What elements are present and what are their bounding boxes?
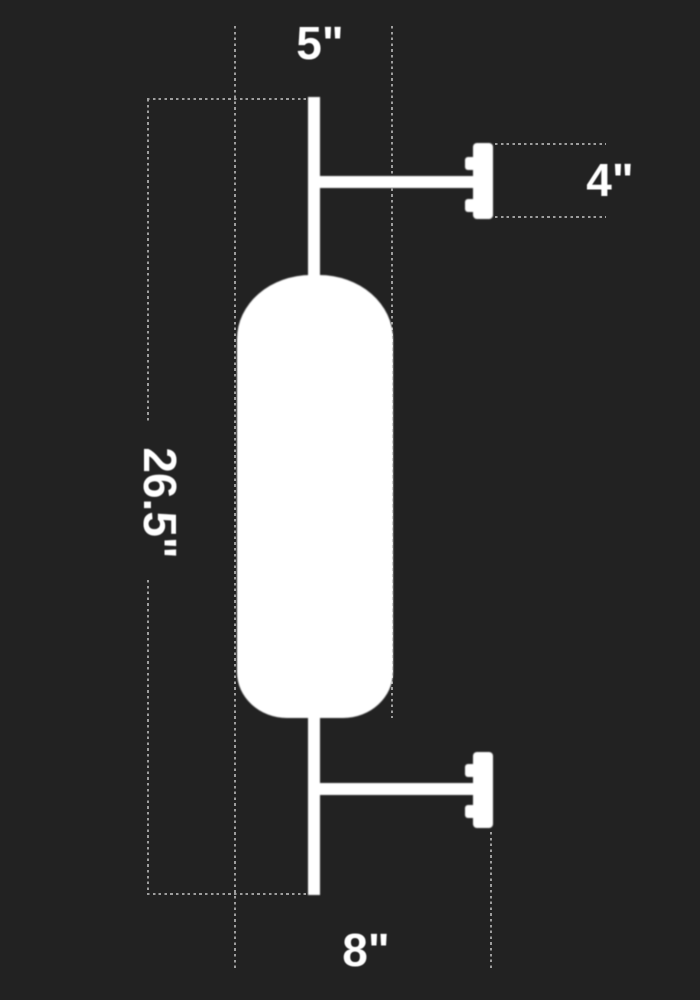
wall-light-fixture	[0, 0, 700, 1000]
top-wall-plate-screw-lower	[465, 199, 474, 212]
dimension-label-wall-plate-height: 4"	[586, 157, 633, 203]
dimension-label-bottom-depth: 8"	[342, 927, 389, 973]
dimension-label-top-width: 5"	[296, 20, 343, 66]
bottom-wall-plate	[473, 752, 493, 828]
top-mounting-arm	[314, 176, 474, 188]
bottom-mounting-arm	[314, 783, 474, 795]
bottom-wall-plate-screw-lower	[465, 805, 474, 818]
top-wall-plate-screw-upper	[465, 157, 474, 170]
dimension-label-overall-height: 26.5"	[137, 447, 183, 558]
top-stem	[308, 97, 320, 279]
top-wall-plate	[473, 143, 493, 219]
cylindrical-diffuser	[237, 275, 393, 718]
bottom-wall-plate-screw-upper	[465, 764, 474, 777]
dimension-diagram: 5" 4" 26.5" 8"	[0, 0, 700, 1000]
bottom-stem	[308, 712, 320, 895]
